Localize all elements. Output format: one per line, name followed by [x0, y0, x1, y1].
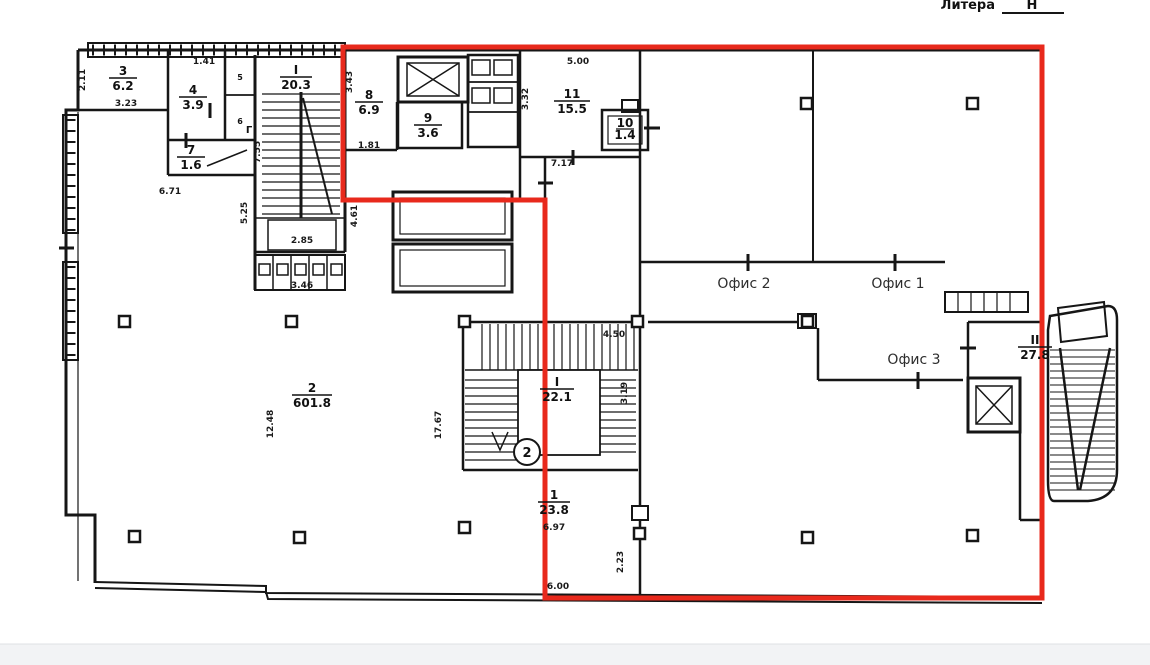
- dim: 3.43: [345, 71, 355, 93]
- dim: 7.55: [253, 141, 263, 163]
- columns: [119, 98, 978, 543]
- room-9-area: 3.6: [417, 126, 438, 140]
- room-II-area: 27.8: [1020, 348, 1050, 362]
- room-3-area: 6.2: [112, 79, 133, 93]
- page-bottom-band: [0, 644, 1150, 665]
- dim: 6.97: [543, 523, 565, 533]
- room-1-number: 1: [550, 488, 558, 502]
- office-1-label: Офис 1: [871, 276, 924, 292]
- room-5-number: 5: [237, 73, 243, 82]
- dim: 3.46: [291, 281, 313, 291]
- stair-middle-area: 22.1: [542, 390, 572, 404]
- room-2-area: 601.8: [293, 396, 331, 410]
- room-4-number: 4: [189, 83, 197, 97]
- dim: 6.71: [159, 187, 181, 197]
- room-7-number: 7: [187, 143, 195, 157]
- floor-plan: Литера Н 3 6.2 4 3.9 5 6 7 1.6 I 20.3 8 …: [0, 0, 1150, 665]
- floor-plan-page: Литера Н 3 6.2 4 3.9 5 6 7 1.6 I 20.3 8 …: [0, 0, 1150, 665]
- dim: 5.00: [567, 57, 589, 67]
- room-1-area: 23.8: [539, 503, 569, 517]
- stair-direction-line: [303, 98, 332, 214]
- floor-marker: 2: [514, 439, 540, 465]
- building-walls: [59, 43, 1117, 603]
- dim: 2.85: [291, 236, 313, 246]
- office-3-label: Офис 3: [887, 352, 940, 368]
- dim: 3.19: [620, 382, 630, 404]
- room-8-number: 8: [365, 88, 373, 102]
- litera-label: Литера: [941, 0, 995, 13]
- room-11-area: 15.5: [557, 102, 587, 116]
- room-I-number: I: [294, 63, 298, 77]
- dim: 1.41: [193, 57, 215, 67]
- elevator-x-icon: [976, 386, 1012, 424]
- floor-marker-number: 2: [522, 446, 531, 461]
- external-stair: [1048, 302, 1117, 501]
- room-II-number: II: [1031, 333, 1040, 347]
- room-3-number: 3: [119, 64, 127, 78]
- dim: 6.00: [547, 582, 569, 592]
- north-core-walls: [345, 50, 648, 292]
- outer-wall-left: [66, 50, 95, 583]
- room-11-number: 11: [564, 87, 581, 101]
- dim: 3.32: [521, 88, 531, 110]
- room-9-number: 9: [424, 111, 432, 125]
- room-7-leader: [207, 150, 247, 166]
- dim: 2.23: [616, 551, 626, 573]
- corridor-letter: Г: [246, 125, 253, 136]
- room-7-area: 1.6: [180, 158, 201, 172]
- dim: 7.17: [551, 159, 573, 169]
- room-6-number: 6: [237, 117, 243, 126]
- dim: 12.48: [266, 410, 276, 438]
- dim: 4.61: [350, 205, 360, 227]
- dim: 5.25: [240, 202, 250, 224]
- northwest-rooms-walls: [66, 50, 255, 581]
- office-2-label: Офис 2: [717, 276, 770, 292]
- room-8-area: 6.9: [358, 103, 379, 117]
- dim: 3.23: [115, 99, 137, 109]
- elevator-x-icon: [407, 63, 459, 96]
- room-4-area: 3.9: [182, 98, 203, 112]
- dim: 4.50: [603, 330, 625, 340]
- room-10-area: 1.4: [614, 128, 635, 142]
- stair-middle-number: I: [555, 375, 559, 389]
- room-2-number: 2: [308, 381, 316, 395]
- litera-value: Н: [1027, 0, 1038, 13]
- shaft-box-2: [393, 244, 512, 292]
- stair-direction-arrow: [492, 432, 508, 450]
- dim: 1.81: [358, 141, 380, 151]
- dim: 17.67: [434, 411, 444, 439]
- dim: 2.11: [78, 69, 88, 91]
- room-I-area: 20.3: [281, 78, 311, 92]
